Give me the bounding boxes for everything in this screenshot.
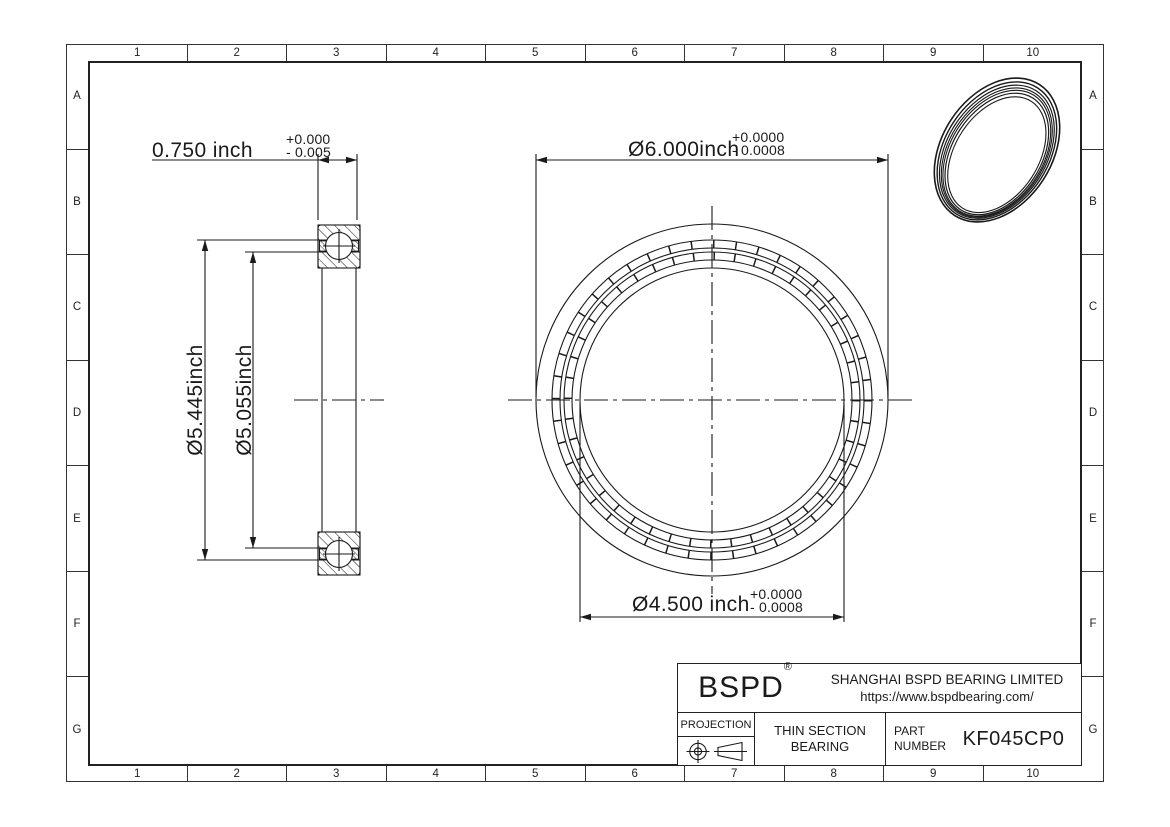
title-block-header: BSPD® SHANGHAI BSPD BEARING LIMITED http… — [678, 664, 1081, 713]
isometric-view — [908, 61, 1082, 245]
grid-col-label: 5 — [486, 44, 586, 61]
logo-text: BSPD — [698, 671, 784, 704]
grid-col-label: 1 — [88, 766, 188, 782]
grid-row-label: G — [66, 677, 88, 782]
title-block: BSPD® SHANGHAI BSPD BEARING LIMITED http… — [677, 663, 1082, 766]
grid-col-label: 1 — [88, 44, 188, 61]
grid-columns-top: 1 2 3 4 5 6 7 8 9 10 — [88, 44, 1082, 61]
part-number-label: PART NUMBER — [886, 724, 946, 754]
grid-col-label: 2 — [188, 44, 288, 61]
tolerance-minus: - 0.0008 — [732, 144, 785, 157]
grid-row-label: B — [66, 150, 88, 256]
front-view — [508, 154, 916, 622]
grid-row-label: D — [66, 361, 88, 467]
grid-row-label: B — [1082, 150, 1104, 256]
grid-col-label: 10 — [984, 766, 1083, 782]
grid-row-label: E — [66, 466, 88, 572]
company-info: SHANGHAI BSPD BEARING LIMITED https://ww… — [813, 672, 1081, 704]
part-number-cell: PART NUMBER KF045CP0 — [886, 713, 1081, 765]
grid-row-label: C — [66, 255, 88, 361]
grid-col-label: 9 — [884, 766, 984, 782]
first-angle-projection-icon — [678, 737, 754, 765]
grid-row-label: D — [1082, 361, 1104, 467]
grid-rows-left: A B C D E F G — [66, 44, 88, 782]
company-name: SHANGHAI BSPD BEARING LIMITED — [831, 672, 1064, 687]
part-number-value: KF045CP0 — [946, 728, 1081, 751]
grid-row-label: A — [1082, 44, 1104, 150]
grid-rows-right: A B C D E F G — [1082, 44, 1104, 782]
grid-col-label: 2 — [188, 766, 288, 782]
grid-col-label: 7 — [685, 766, 785, 782]
dim-bore-text: Ø4.500 inch — [632, 593, 750, 617]
grid-col-label: 6 — [586, 766, 686, 782]
product-name: THIN SECTION BEARING — [755, 713, 886, 765]
grid-col-label: 6 — [586, 44, 686, 61]
grid-col-label: 8 — [785, 44, 885, 61]
tolerance-minus: - 0.0008 — [750, 601, 803, 614]
section-bottom-ring — [318, 532, 360, 575]
grid-col-label: 9 — [884, 44, 984, 61]
projection-label: PROJECTION — [678, 713, 754, 737]
grid-row-label: C — [1082, 255, 1104, 361]
drawing-sheet: { "drawing": { "grid": { "columns": ["1"… — [0, 0, 1170, 827]
company-website: https://www.bspdbearing.com/ — [860, 689, 1033, 704]
dim-width-lines — [152, 154, 357, 220]
grid-row-label: G — [1082, 677, 1104, 782]
grid-col-label: 5 — [486, 766, 586, 782]
tolerance-minus: - 0.005 — [286, 146, 331, 159]
grid-row-label: F — [66, 572, 88, 678]
grid-col-label: 3 — [287, 44, 387, 61]
grid-row-label: F — [1082, 572, 1104, 678]
grid-col-label: 7 — [685, 44, 785, 61]
title-block-details: PROJECTION THIN SECTION BEARING PART NUM… — [678, 713, 1081, 765]
grid-row-label: E — [1082, 466, 1104, 572]
grid-col-label: 4 — [387, 766, 487, 782]
dim-width-text: 0.750 inch — [152, 139, 253, 163]
dim-bore-tolerance: +0.0000 - 0.0008 — [750, 588, 803, 614]
grid-col-label: 3 — [287, 766, 387, 782]
grid-row-label: A — [66, 44, 88, 150]
product-line1: THIN SECTION — [774, 723, 866, 739]
dim-inner-race-text: Ø5.055inch — [233, 325, 255, 475]
dim-od-tolerance: +0.0000 - 0.0008 — [732, 131, 785, 157]
grid-col-label: 4 — [387, 44, 487, 61]
dim-width-tolerance: +0.000 - 0.005 — [286, 133, 331, 159]
projection-cell: PROJECTION — [678, 713, 755, 765]
section-top-ring — [318, 225, 360, 268]
company-logo: BSPD® — [678, 671, 813, 705]
dim-od-text: Ø6.000inch — [628, 138, 739, 162]
grid-columns-bottom: 1 2 3 4 5 6 7 8 9 10 — [88, 766, 1082, 782]
registered-trademark: ® — [784, 661, 793, 673]
dim-outer-race-text: Ø5.445inch — [184, 325, 206, 475]
grid-col-label: 8 — [785, 766, 885, 782]
product-line2: BEARING — [791, 739, 850, 755]
grid-col-label: 10 — [984, 44, 1083, 61]
